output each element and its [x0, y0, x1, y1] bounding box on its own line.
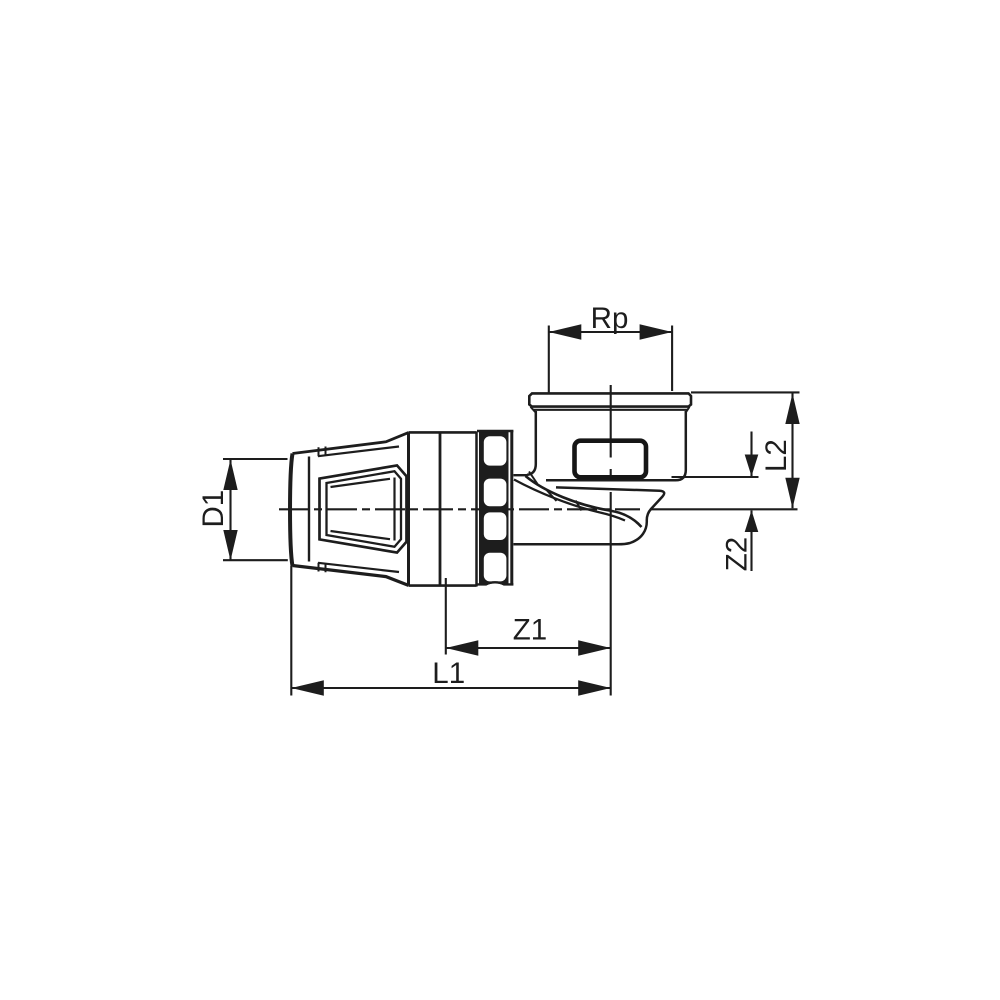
svg-text:Z2: Z2: [721, 537, 754, 571]
svg-text:L2: L2: [760, 439, 793, 472]
svg-text:Rp: Rp: [591, 302, 629, 335]
svg-text:L1: L1: [432, 657, 465, 690]
svg-text:D1: D1: [197, 490, 230, 528]
svg-text:Z1: Z1: [513, 614, 547, 647]
